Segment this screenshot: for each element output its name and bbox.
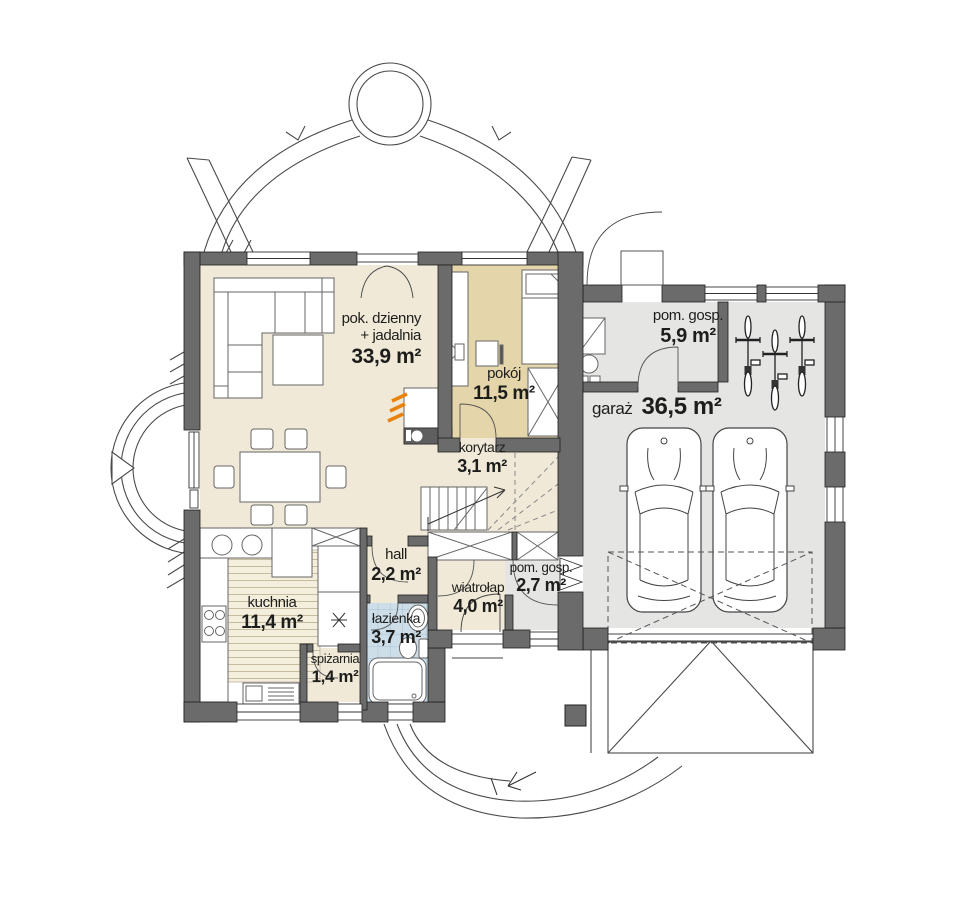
bifold-door-icon <box>560 558 582 590</box>
closet-built-in <box>428 532 558 560</box>
pokoj-table <box>476 341 498 366</box>
dining-table <box>240 452 320 502</box>
coffee-table <box>273 335 323 385</box>
west-terrace-mark <box>112 452 134 484</box>
fridge-cabinet <box>312 528 360 646</box>
terrace-door <box>189 432 199 508</box>
bathtub <box>369 658 426 704</box>
porch-pillar <box>565 705 586 726</box>
entry-walkway-arcs <box>384 724 682 818</box>
floor-plan-page: pok. dzienny + jadalnia 33,9 m² pokój 11… <box>0 0 964 900</box>
car-icon <box>620 428 708 612</box>
pokoj-pc <box>455 344 464 360</box>
utility-exterior-door <box>587 212 663 285</box>
floor-plan-canvas <box>0 0 964 900</box>
bathroom-sink <box>408 605 428 631</box>
pergola-wing-right <box>527 157 591 252</box>
walkway-arrow <box>491 772 536 795</box>
kitchen-sink <box>212 535 232 555</box>
floor-garage <box>583 302 825 628</box>
fireplace <box>404 388 438 428</box>
pergola-circle-inner <box>357 71 423 137</box>
pergola-wing-left <box>187 158 253 252</box>
pergola-circle-outer <box>349 63 431 145</box>
driveway-roof-hips <box>608 641 813 753</box>
driveway-roof-outline <box>608 641 813 753</box>
car-icon <box>706 428 794 612</box>
pokoj-monitor <box>500 345 503 364</box>
pergola-arc <box>204 120 352 252</box>
toilet <box>400 638 429 659</box>
